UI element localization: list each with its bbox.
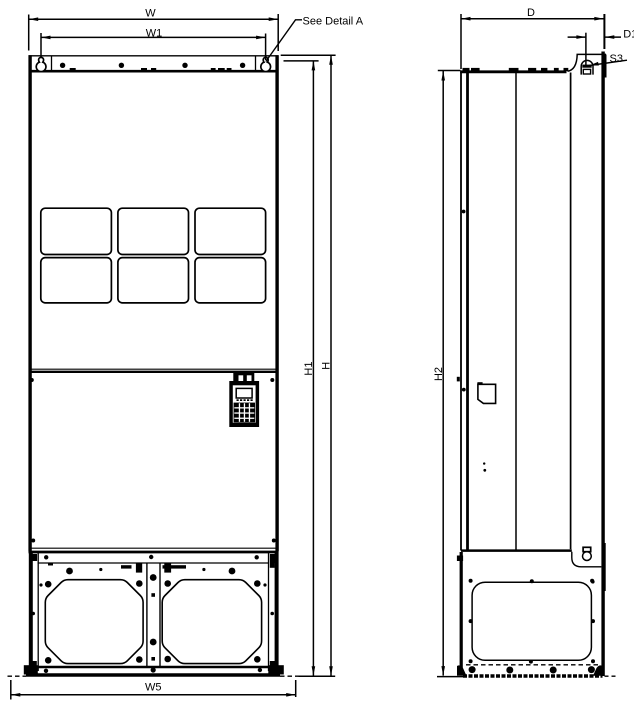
svg-text:S3: S3 [610,53,623,65]
svg-text:H: H [321,362,333,370]
svg-text:See Detail A: See Detail A [303,15,364,27]
svg-text:W: W [145,8,156,20]
svg-text:H1: H1 [303,362,315,376]
svg-text:W1: W1 [146,27,163,39]
svg-text:D: D [527,7,535,19]
svg-text:W5: W5 [145,682,162,694]
svg-text:H2: H2 [433,367,445,381]
svg-text:D1: D1 [623,28,634,40]
